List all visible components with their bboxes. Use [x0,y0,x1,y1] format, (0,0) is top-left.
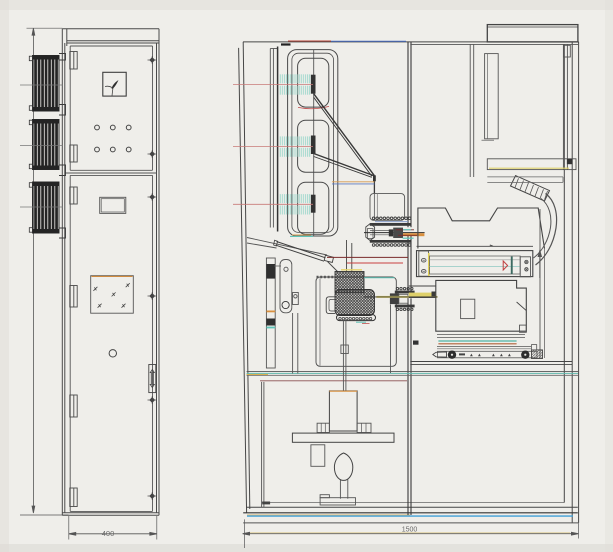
svg-text:1500: 1500 [402,527,418,534]
svg-text:400: 400 [102,529,115,538]
